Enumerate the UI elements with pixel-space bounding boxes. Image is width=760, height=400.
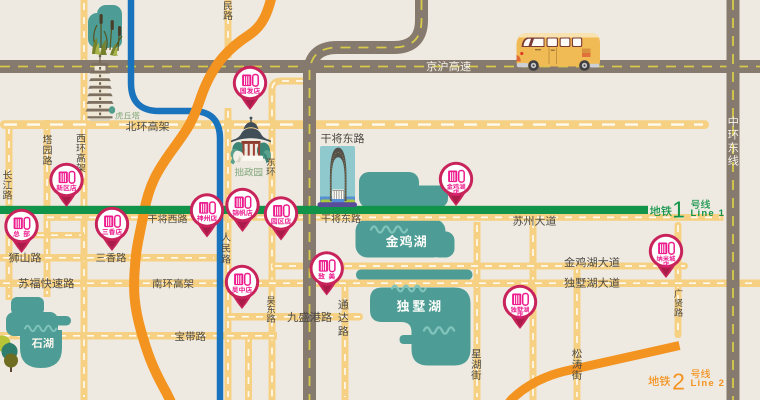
svg-text:Line 1: Line 1: [691, 208, 726, 219]
svg-text:1: 1: [672, 197, 685, 223]
svg-text:2: 2: [672, 369, 685, 395]
svg-text:Line 2: Line 2: [691, 378, 726, 389]
